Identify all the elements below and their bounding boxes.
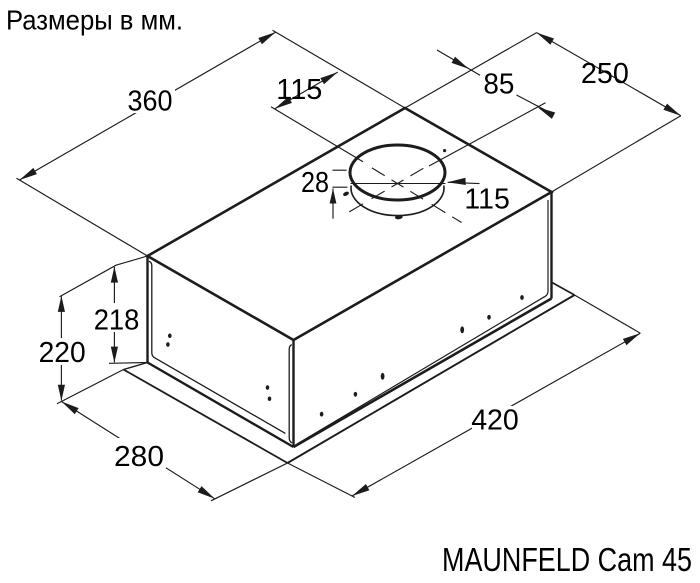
svg-text:115: 115 [276, 74, 322, 106]
svg-text:28: 28 [301, 167, 329, 199]
svg-text:MAUNFELD Cam 45: MAUNFELD Cam 45 [442, 541, 692, 578]
svg-text:360: 360 [128, 86, 173, 118]
svg-text:Размеры в мм.: Размеры в мм. [6, 5, 183, 36]
svg-text:280: 280 [114, 441, 164, 473]
svg-text:250: 250 [581, 58, 629, 90]
svg-text:115: 115 [464, 183, 509, 215]
svg-text:420: 420 [471, 405, 519, 437]
svg-text:218: 218 [94, 305, 140, 337]
svg-text:220: 220 [39, 337, 86, 369]
svg-text:85: 85 [483, 69, 514, 101]
